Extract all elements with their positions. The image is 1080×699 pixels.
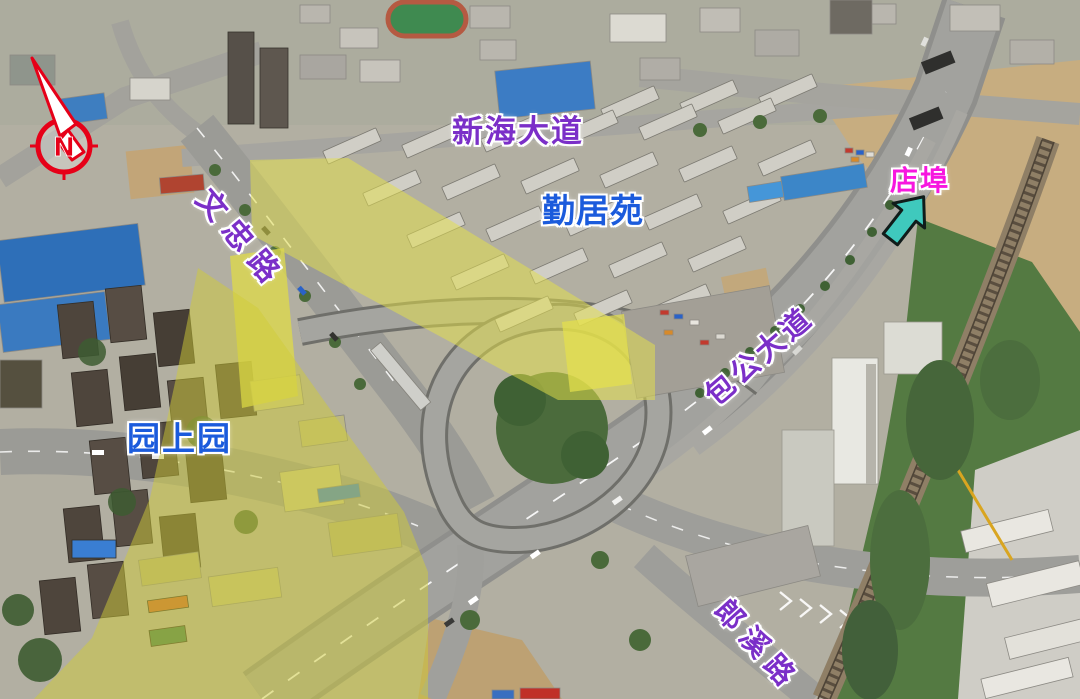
north-arrow-icon: N bbox=[18, 48, 128, 198]
north-letter: N bbox=[53, 133, 75, 163]
running-track bbox=[388, 2, 466, 36]
highlight-zone-detached-building bbox=[562, 314, 632, 392]
label-yuanshangyuan-residence: 园上园 bbox=[127, 422, 232, 455]
direction-arrow-icon bbox=[872, 188, 942, 250]
label-dianbu-direction: 店埠 bbox=[890, 167, 950, 195]
aerial-photo: N 新海大道 勤居苑 店埠 文忠路 园上园 包公大道 郎溪路 bbox=[0, 0, 1080, 699]
label-xinhai-avenue: 新海大道 bbox=[452, 117, 584, 148]
aerial-scene bbox=[0, 0, 1080, 699]
label-qinjuyuan-residence: 勤居苑 bbox=[542, 194, 644, 227]
